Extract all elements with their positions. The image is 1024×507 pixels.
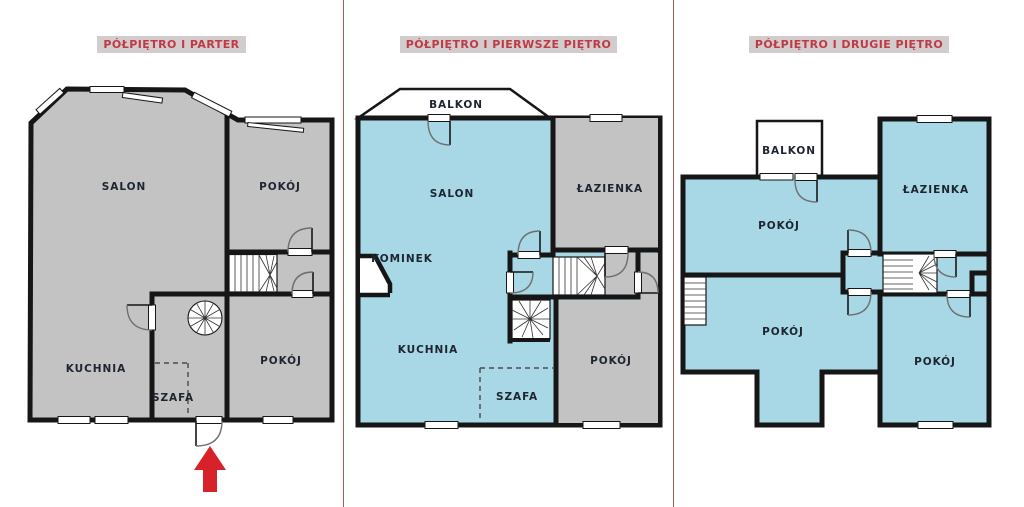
half-landing-stairs-2p: [684, 277, 706, 325]
floorplan-parter: SALON POKÓJ KUCHNIA SZAFA POKÓJ: [30, 87, 332, 493]
room-label-szafa: SZAFA: [152, 392, 194, 404]
room-label-pokoj-prawy-2p: POKÓJ: [914, 355, 956, 368]
room-label-lazienka-1p: ŁAZIENKA: [576, 183, 643, 195]
room-label-pokoj-dolny: POKÓJ: [260, 354, 302, 367]
spiral-staircase-1p: [512, 300, 550, 340]
blue-areas-2p: [683, 119, 989, 425]
room-label-balkon-1p: BALKON: [429, 99, 483, 111]
room-label-balkon-2p: BALKON: [762, 145, 816, 157]
floorplans-svg: SALON POKÓJ KUCHNIA SZAFA POKÓJ: [0, 0, 1024, 507]
entrance-arrow-icon: [194, 446, 226, 492]
room-label-pokoj-1p: POKÓJ: [590, 354, 632, 367]
room-label-salon-1p: SALON: [430, 188, 474, 200]
winder-staircase: [229, 255, 277, 293]
room-label-kuchnia: KUCHNIA: [66, 363, 126, 375]
floorplan-page: PÓŁPIĘTRO I PARTER PÓŁPIĘTRO I PIERWSZE …: [0, 0, 1024, 507]
floorplan-pierwsze-pietro: BALKON SALON ŁAZIENKA KOMINEK KUCHNIA SZ…: [358, 89, 660, 429]
room-label-pokoj-srodkowy-2p: POKÓJ: [762, 325, 804, 338]
winder-staircase-1p: [553, 257, 605, 295]
room-label-kominek: KOMINEK: [371, 253, 433, 265]
winder-staircase-2p: [883, 254, 937, 293]
room-label-pokoj-gorny-2p: POKÓJ: [758, 219, 800, 232]
room-label-szafa-1p: SZAFA: [496, 391, 538, 403]
room-label-salon: SALON: [102, 181, 146, 193]
door-entrance: [196, 417, 222, 447]
room-label-lazienka-2p: ŁAZIENKA: [902, 184, 969, 196]
floorplan-drugie-pietro: BALKON ŁAZIENKA POKÓJ POKÓJ POKÓJ: [683, 116, 989, 429]
spiral-staircase: [188, 301, 222, 335]
room-label-kuchnia-1p: KUCHNIA: [398, 344, 458, 356]
room-label-pokoj-gorny: POKÓJ: [259, 180, 301, 193]
